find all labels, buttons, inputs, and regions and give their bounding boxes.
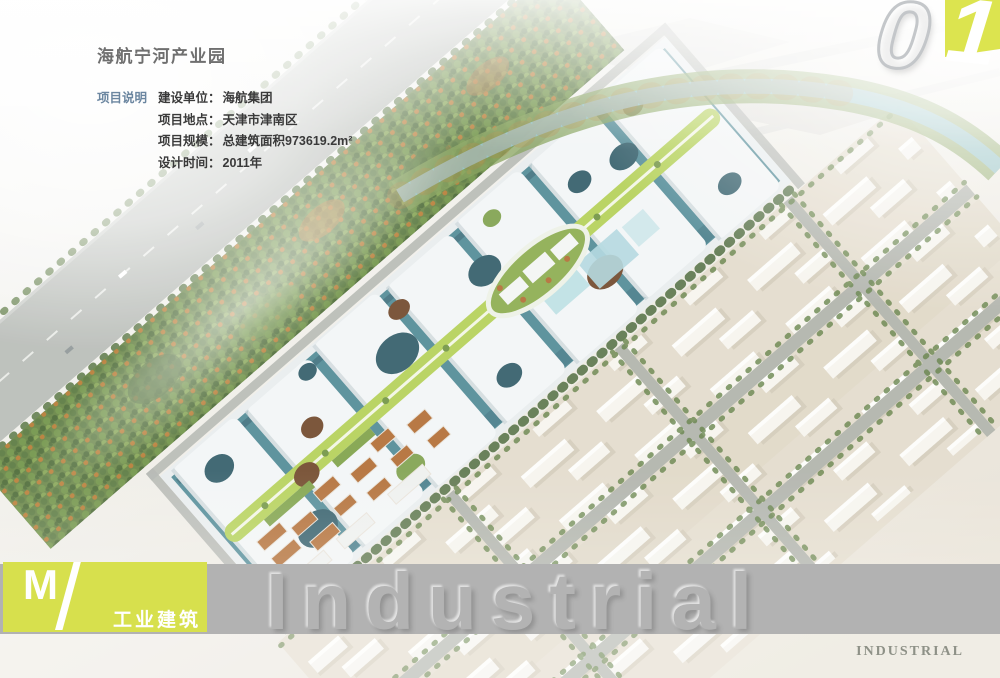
detail-value: 海航集团 [223,91,273,105]
detail-row-owner: 建设单位：海航集团 [158,88,352,110]
project-details-list: 建设单位：海航集团 项目地点：天津市津南区 项目规模：总建筑面积973619.2… [158,88,352,174]
detail-label: 设计时间： [158,156,221,170]
watermark-text: Industrial [266,564,766,634]
detail-row-year: 设计时间：2011年 [158,153,352,175]
detail-label: 项目地点： [158,113,221,127]
detail-value: 天津市津南区 [223,113,298,127]
detail-label: 建设单位： [158,91,221,105]
section-label: 项目说明 [97,88,147,110]
portfolio-page: 海航宁河产业园 项目说明 建设单位：海航集团 项目地点：天津市津南区 项目规模：… [0,0,1000,678]
category-box: M / 工业建筑 [3,562,207,632]
detail-value: 2011年 [223,156,263,170]
corner-label: INDUSTRIAL [856,644,964,660]
detail-row-scale: 项目规模：总建筑面积973619.2m² [158,131,352,153]
detail-row-location: 项目地点：天津市津南区 [158,110,352,132]
page-title: 海航宁河产业园 [97,42,352,67]
category-letter: M [23,563,58,607]
project-info: 项目说明 建设单位：海航集团 项目地点：天津市津南区 项目规模：总建筑面积973… [97,88,352,174]
slash-divider: / [55,562,81,632]
detail-value: 总建筑面积973619.2m² [223,134,353,148]
detail-label: 项目规模： [158,134,221,148]
header: 海航宁河产业园 项目说明 建设单位：海航集团 项目地点：天津市津南区 项目规模：… [97,42,352,174]
category-label: 工业建筑 [113,605,201,632]
